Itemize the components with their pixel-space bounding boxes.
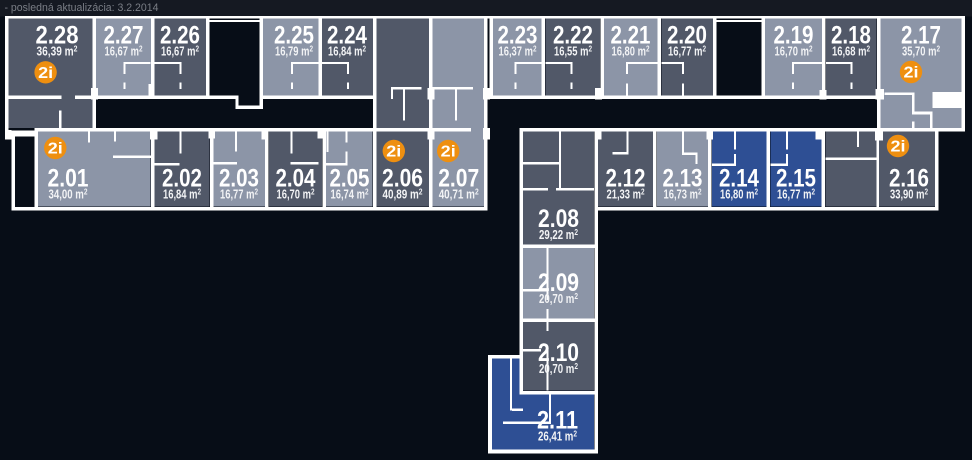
svg-text:2i: 2i bbox=[386, 144, 401, 161]
svg-text:33,90 m2: 33,90 m2 bbox=[890, 187, 928, 202]
svg-text:16,55 m2: 16,55 m2 bbox=[554, 44, 592, 59]
svg-text:35,70 m2: 35,70 m2 bbox=[902, 44, 940, 59]
svg-text:40,89 m2: 40,89 m2 bbox=[383, 187, 423, 202]
svg-text:16,70 m2: 16,70 m2 bbox=[277, 187, 315, 202]
svg-text:16,68 m2: 16,68 m2 bbox=[832, 44, 870, 59]
svg-text:40,71 m2: 40,71 m2 bbox=[439, 187, 479, 202]
svg-text:2i: 2i bbox=[904, 65, 919, 82]
svg-text:16,77 m2: 16,77 m2 bbox=[220, 187, 258, 202]
svg-text:16,77 m2: 16,77 m2 bbox=[668, 44, 706, 59]
svg-text:34,00 m2: 34,00 m2 bbox=[49, 187, 88, 202]
svg-text:2i: 2i bbox=[441, 144, 456, 161]
svg-text:16,37 m2: 16,37 m2 bbox=[499, 44, 537, 59]
svg-text:16,84 m2: 16,84 m2 bbox=[163, 187, 201, 202]
svg-text:16,67 m2: 16,67 m2 bbox=[161, 44, 199, 59]
svg-text:29,22 m2: 29,22 m2 bbox=[539, 227, 578, 242]
svg-text:16,74 m2: 16,74 m2 bbox=[331, 187, 369, 202]
svg-text:16,80 m2: 16,80 m2 bbox=[720, 187, 758, 202]
svg-text:16,77 m2: 16,77 m2 bbox=[777, 187, 815, 202]
svg-text:21,33 m2: 21,33 m2 bbox=[607, 187, 645, 202]
svg-text:16,80 m2: 16,80 m2 bbox=[612, 44, 650, 59]
svg-text:36,39 m2: 36,39 m2 bbox=[37, 44, 78, 59]
svg-text:16,79 m2: 16,79 m2 bbox=[275, 44, 313, 59]
svg-text:16,73 m2: 16,73 m2 bbox=[664, 187, 702, 202]
svg-text:2i: 2i bbox=[38, 65, 53, 82]
svg-text:2i: 2i bbox=[48, 141, 63, 158]
svg-text:20,70 m2: 20,70 m2 bbox=[539, 291, 578, 306]
svg-text:- posledná aktualizácia: 3.2.2: - posledná aktualizácia: 3.2.2014 bbox=[5, 2, 159, 14]
svg-text:2i: 2i bbox=[891, 139, 906, 156]
svg-text:26,41 m2: 26,41 m2 bbox=[538, 429, 577, 444]
svg-text:20,70 m2: 20,70 m2 bbox=[539, 361, 578, 376]
svg-text:16,70 m2: 16,70 m2 bbox=[775, 44, 813, 59]
svg-text:16,84 m2: 16,84 m2 bbox=[328, 44, 366, 59]
svg-text:16,67 m2: 16,67 m2 bbox=[105, 44, 143, 59]
